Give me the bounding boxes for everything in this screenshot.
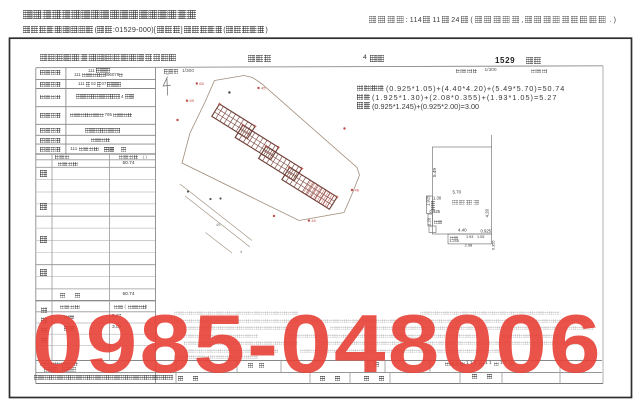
svg-text:0.355: 0.355 <box>492 240 496 250</box>
svg-text:2.08: 2.08 <box>465 243 474 248</box>
svg-text:69: 69 <box>190 98 195 103</box>
svg-text:4.20: 4.20 <box>484 208 489 217</box>
svg-text:0.925: 0.925 <box>430 209 441 214</box>
svg-text:5.70: 5.70 <box>453 190 462 195</box>
svg-text:45: 45 <box>261 86 266 91</box>
svg-text:1.93: 1.93 <box>466 235 473 239</box>
svg-text:46: 46 <box>355 188 360 193</box>
svg-text:0.925: 0.925 <box>481 229 492 234</box>
svg-text:45: 45 <box>216 222 221 227</box>
svg-text:1.925: 1.925 <box>426 195 431 206</box>
svg-text:45: 45 <box>311 218 316 223</box>
svg-text:68: 68 <box>199 81 204 86</box>
svg-text:4: 4 <box>240 249 243 254</box>
svg-text:4.40: 4.40 <box>458 228 467 233</box>
svg-text:5.49: 5.49 <box>432 168 437 177</box>
svg-text:1.20: 1.20 <box>427 217 432 226</box>
svg-text:1.05: 1.05 <box>477 235 484 239</box>
